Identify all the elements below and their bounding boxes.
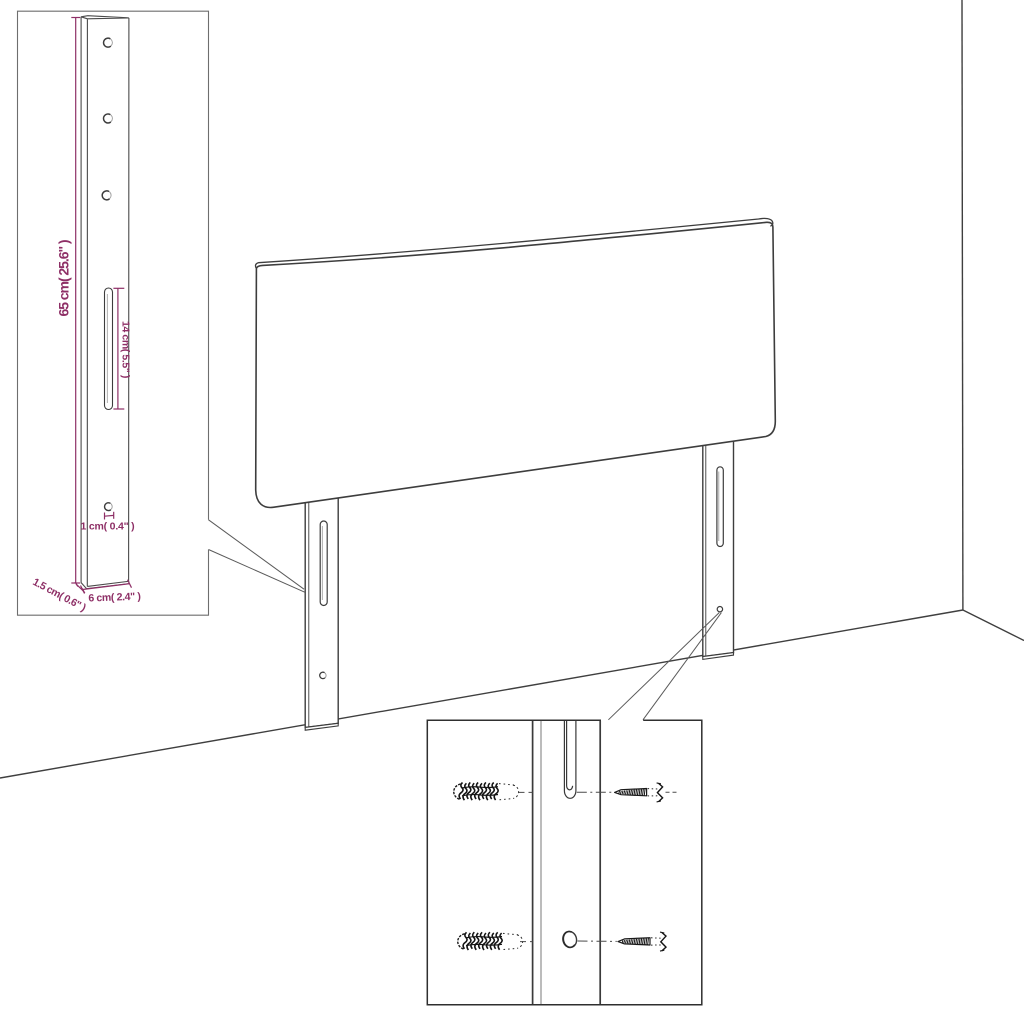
svg-text:6 cm( 2.4" ): 6 cm( 2.4" ) xyxy=(88,591,141,605)
svg-text:14 cm( 5.5" ): 14 cm( 5.5" ) xyxy=(120,321,132,378)
svg-text:65 cm( 25.6" ): 65 cm( 25.6" ) xyxy=(56,240,72,316)
svg-text:1 cm( 0.4" ): 1 cm( 0.4" ) xyxy=(81,520,135,532)
